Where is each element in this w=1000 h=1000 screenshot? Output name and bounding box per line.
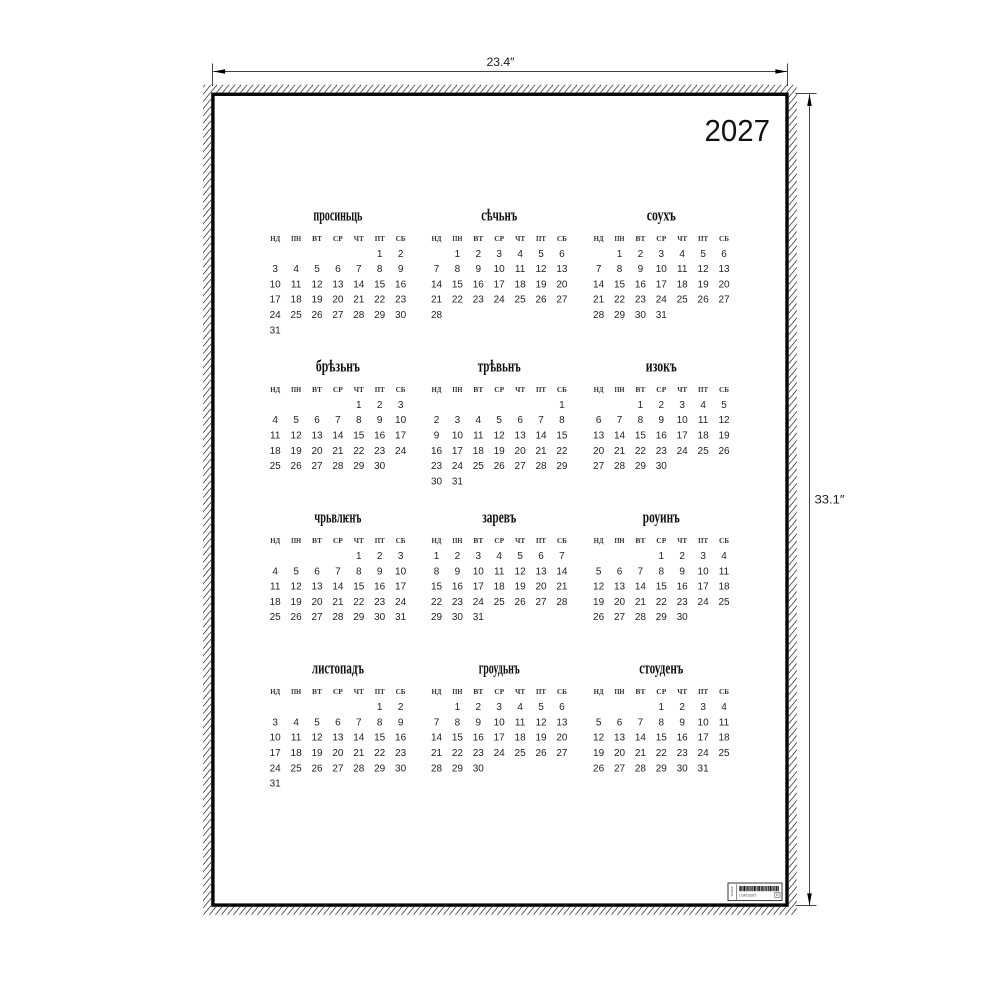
- svg-text:соухъ: соухъ: [647, 205, 676, 224]
- svg-text:брѣзьнъ: брѣзьнъ: [316, 356, 360, 375]
- svg-text:23.4″: 23.4″: [487, 55, 516, 69]
- svg-text:трѣвьнъ: трѣвьнъ: [478, 356, 521, 375]
- svg-text:33.1″: 33.1″: [815, 493, 846, 507]
- svg-text:1: 1: [559, 400, 565, 411]
- svg-text:16x9mf: 16x9mf: [730, 887, 734, 897]
- svg-text:сѣчьнъ: сѣчьнъ: [481, 205, 517, 224]
- svg-text:31: 31: [270, 779, 282, 790]
- svg-text:282930: 282930: [431, 763, 484, 774]
- svg-text:заревъ: заревъ: [482, 508, 516, 527]
- svg-text:листопадъ: листопадъ: [312, 659, 364, 678]
- svg-text:31: 31: [270, 325, 282, 336]
- svg-text:LGKO2027: LGKO2027: [739, 893, 756, 897]
- svg-text:чрьвлѥнъ: чрьвлѥнъ: [314, 508, 361, 527]
- svg-text:просиньць: просиньць: [313, 205, 362, 224]
- svg-text:стоуденъ: стоуденъ: [639, 659, 683, 678]
- svg-text:изокъ: изокъ: [646, 356, 677, 375]
- svg-text:293031: 293031: [431, 612, 484, 623]
- svg-text:28: 28: [431, 310, 443, 321]
- svg-text:2027: 2027: [705, 113, 771, 148]
- svg-text:роуинъ: роуинъ: [643, 508, 680, 527]
- svg-text:гроудьнъ: гроудьнъ: [479, 659, 520, 678]
